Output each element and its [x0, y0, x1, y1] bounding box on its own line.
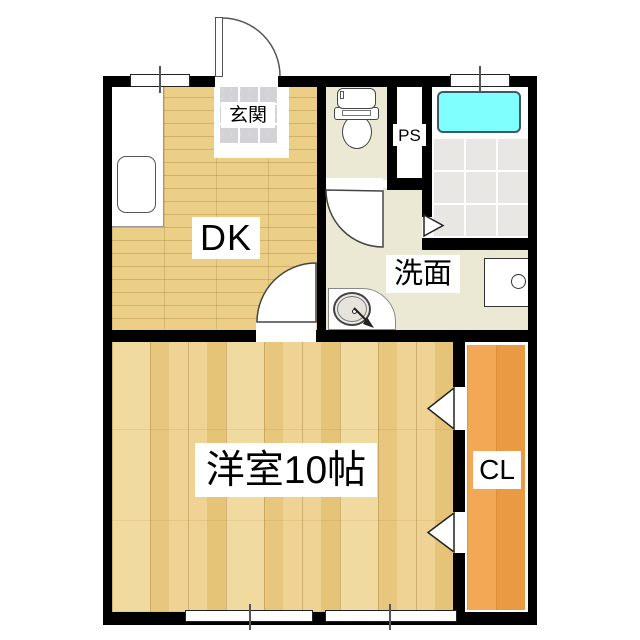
label-dk-text: DK — [200, 220, 252, 256]
label-genkan: 玄関 — [221, 102, 275, 128]
label-west-room-text: 洋室10帖 — [206, 451, 366, 490]
label-closet: CL — [473, 451, 521, 489]
label-closet-text: CL — [479, 456, 515, 484]
label-ps: PS — [393, 124, 426, 146]
door-symbols-overlay — [0, 0, 640, 640]
floorplan-canvas: 玄関 DK PS 洗面 洋室10帖 CL — [0, 0, 640, 640]
label-senmen: 洗面 — [386, 255, 460, 293]
toilet-door-swing — [326, 190, 383, 247]
label-senmen-text: 洗面 — [394, 260, 452, 289]
dk-door-swing — [257, 263, 316, 322]
entrance-door-arc — [222, 18, 280, 76]
label-genkan-text: 玄関 — [229, 106, 267, 125]
closet-door-icon-bottom — [428, 513, 454, 552]
label-ps-text: PS — [398, 127, 421, 144]
label-west-room: 洋室10帖 — [195, 443, 377, 497]
label-dk: DK — [192, 217, 260, 259]
bath-folding-door-icon — [424, 215, 443, 236]
closet-door-icon-top — [428, 388, 454, 429]
